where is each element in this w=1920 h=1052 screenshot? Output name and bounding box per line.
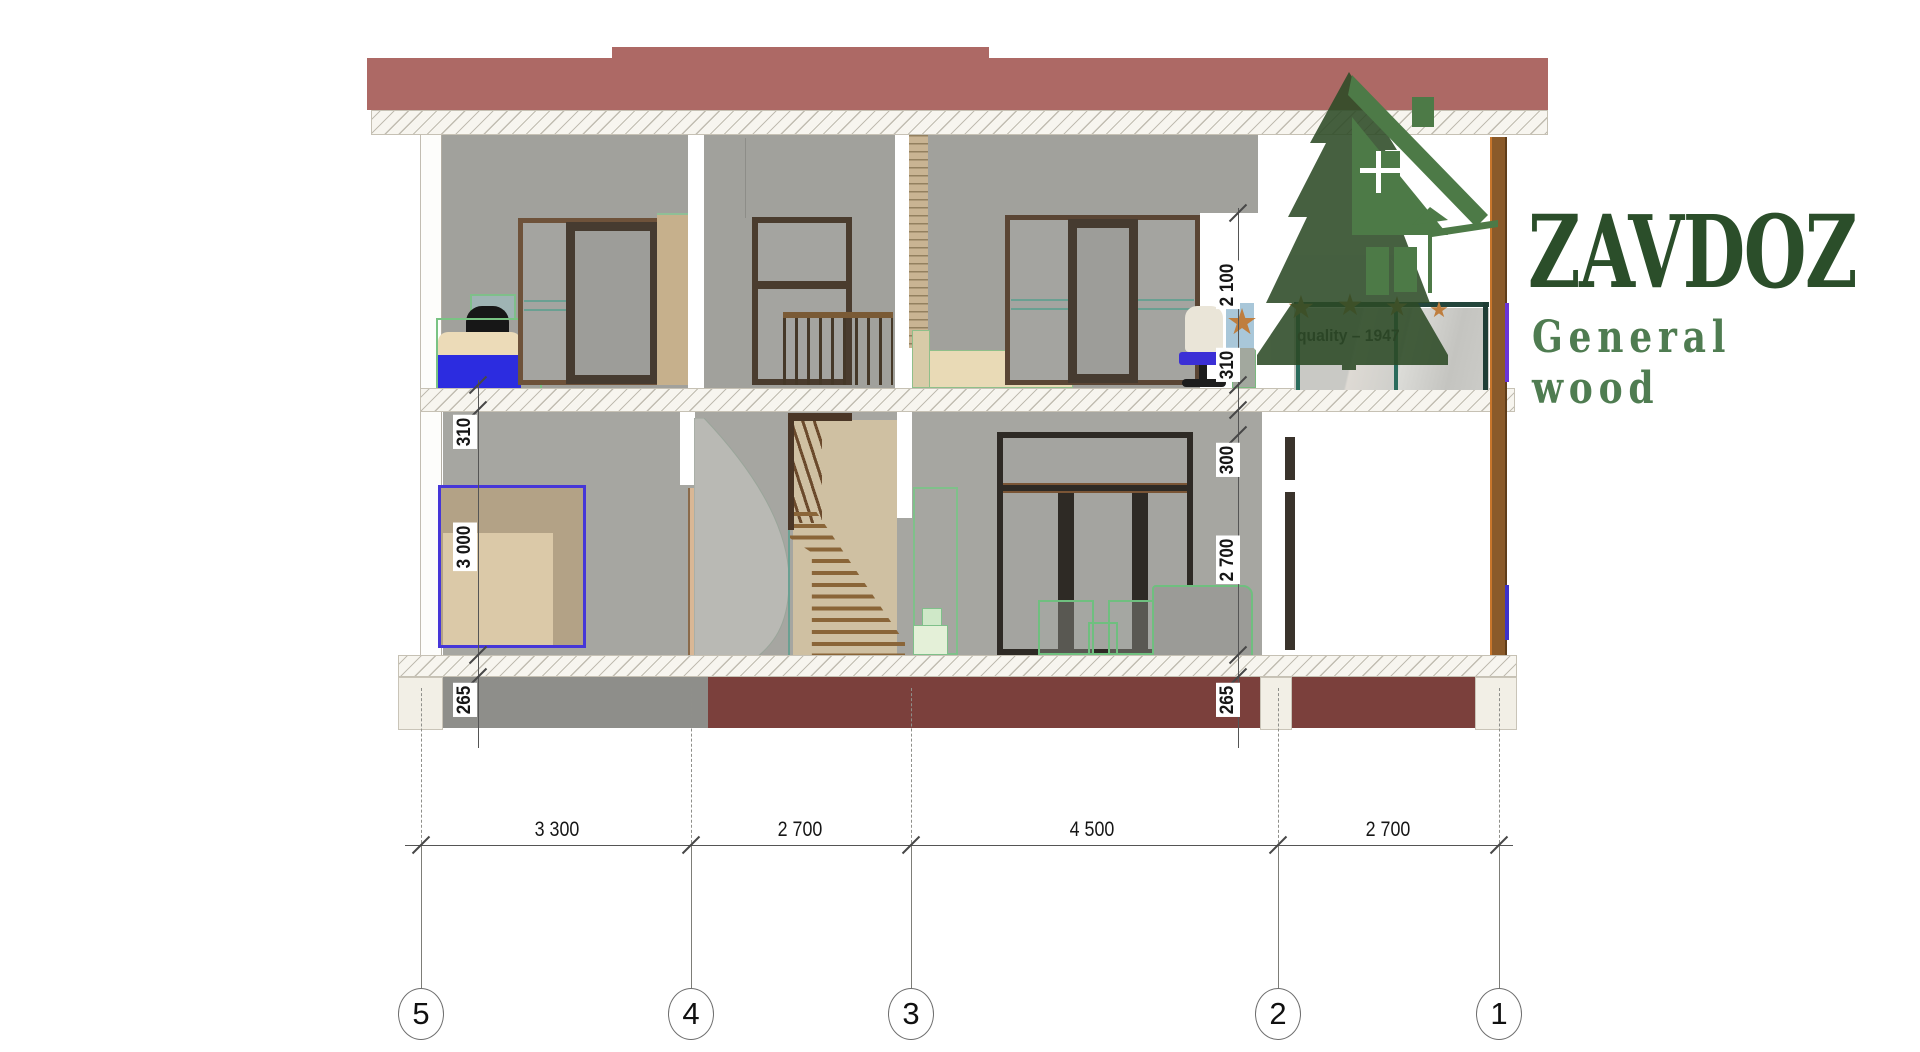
balcony-door-panel [1068, 219, 1138, 383]
office-chair-back [1185, 306, 1223, 352]
dim-label: 3 300 [532, 818, 582, 842]
grid-stem [1499, 846, 1500, 988]
grid-line [1499, 688, 1501, 843]
dim-label: 300 [1216, 443, 1240, 477]
post-accent-blue [1505, 585, 1509, 640]
grid-stem [691, 846, 692, 988]
grid-stem [421, 846, 422, 988]
dim-label: 310 [453, 415, 477, 449]
grid-stem [1278, 846, 1279, 988]
grid-stem [911, 846, 912, 988]
bottom-dimension-line [405, 845, 1513, 846]
chimney-brick-column [909, 135, 928, 348]
wall-stud-grid4-1f [680, 412, 695, 485]
section-drawing: ★ ★ ★ ★ ★ quality – 1947 ZAVDOZ General [0, 0, 1920, 1052]
stairwell-window-transom [757, 281, 847, 289]
foundation-pier [1260, 677, 1292, 730]
foundation-pier [1475, 677, 1517, 730]
foundation-wall-maroon [708, 677, 1260, 728]
stair-stringer-curve [694, 418, 800, 658]
ground-slab [398, 655, 1517, 677]
dim-label: 2 700 [1363, 818, 1413, 842]
dim-label: 265 [1216, 683, 1240, 717]
grid-line [421, 688, 423, 843]
hall-cabinet-base [913, 625, 948, 655]
livingroom-window-transom [1003, 483, 1187, 493]
armchair-outline [1038, 600, 1094, 655]
stair-door-lintel [788, 413, 852, 421]
foundation-wall-maroon [1292, 677, 1475, 728]
logo-graphic [1252, 55, 1528, 370]
bedroom1-door-panel [566, 222, 659, 384]
dim-label: 2 700 [775, 818, 825, 842]
wardrobe-panel-2f [657, 213, 688, 385]
grid-bubble: 1 [1476, 988, 1522, 1040]
logo-brand: ZAVDOZ [1528, 206, 1856, 298]
dim-label: 310 [1216, 348, 1240, 382]
dim-label: 2 100 [1216, 261, 1240, 309]
grid-bubble: 5 [398, 988, 444, 1040]
grid-bubble: 3 [888, 988, 934, 1040]
grid-bubble: 4 [668, 988, 714, 1040]
logo-subtitle: General wood [1532, 312, 1850, 414]
floor-slab-2f [420, 388, 1515, 412]
dim-chain-left [478, 380, 479, 748]
stair-door-jamb [788, 413, 794, 530]
coffee-table-outline [1088, 622, 1118, 655]
wall-stud-grid4-2f [688, 135, 704, 388]
grid-line [691, 688, 693, 843]
hanging-line [745, 138, 746, 218]
grid-line [1278, 688, 1280, 843]
bed2-headboard-outline [912, 330, 930, 388]
roof-raised-section [612, 47, 989, 62]
grid-bubble: 2 [1255, 988, 1301, 1040]
porch-door-gap [1285, 480, 1295, 492]
dim-label: 2 700 [1216, 536, 1240, 584]
dim-label: 4 500 [1067, 818, 1117, 842]
wall-stud-grid3-1f [897, 412, 912, 518]
stair-guard-balusters [783, 318, 893, 385]
porch-door-leaf [1285, 437, 1295, 650]
foundation-wall-gray [443, 677, 708, 728]
dim-label: 3 000 [453, 523, 477, 571]
dim-label: 265 [453, 683, 477, 717]
grid-line [911, 688, 913, 843]
